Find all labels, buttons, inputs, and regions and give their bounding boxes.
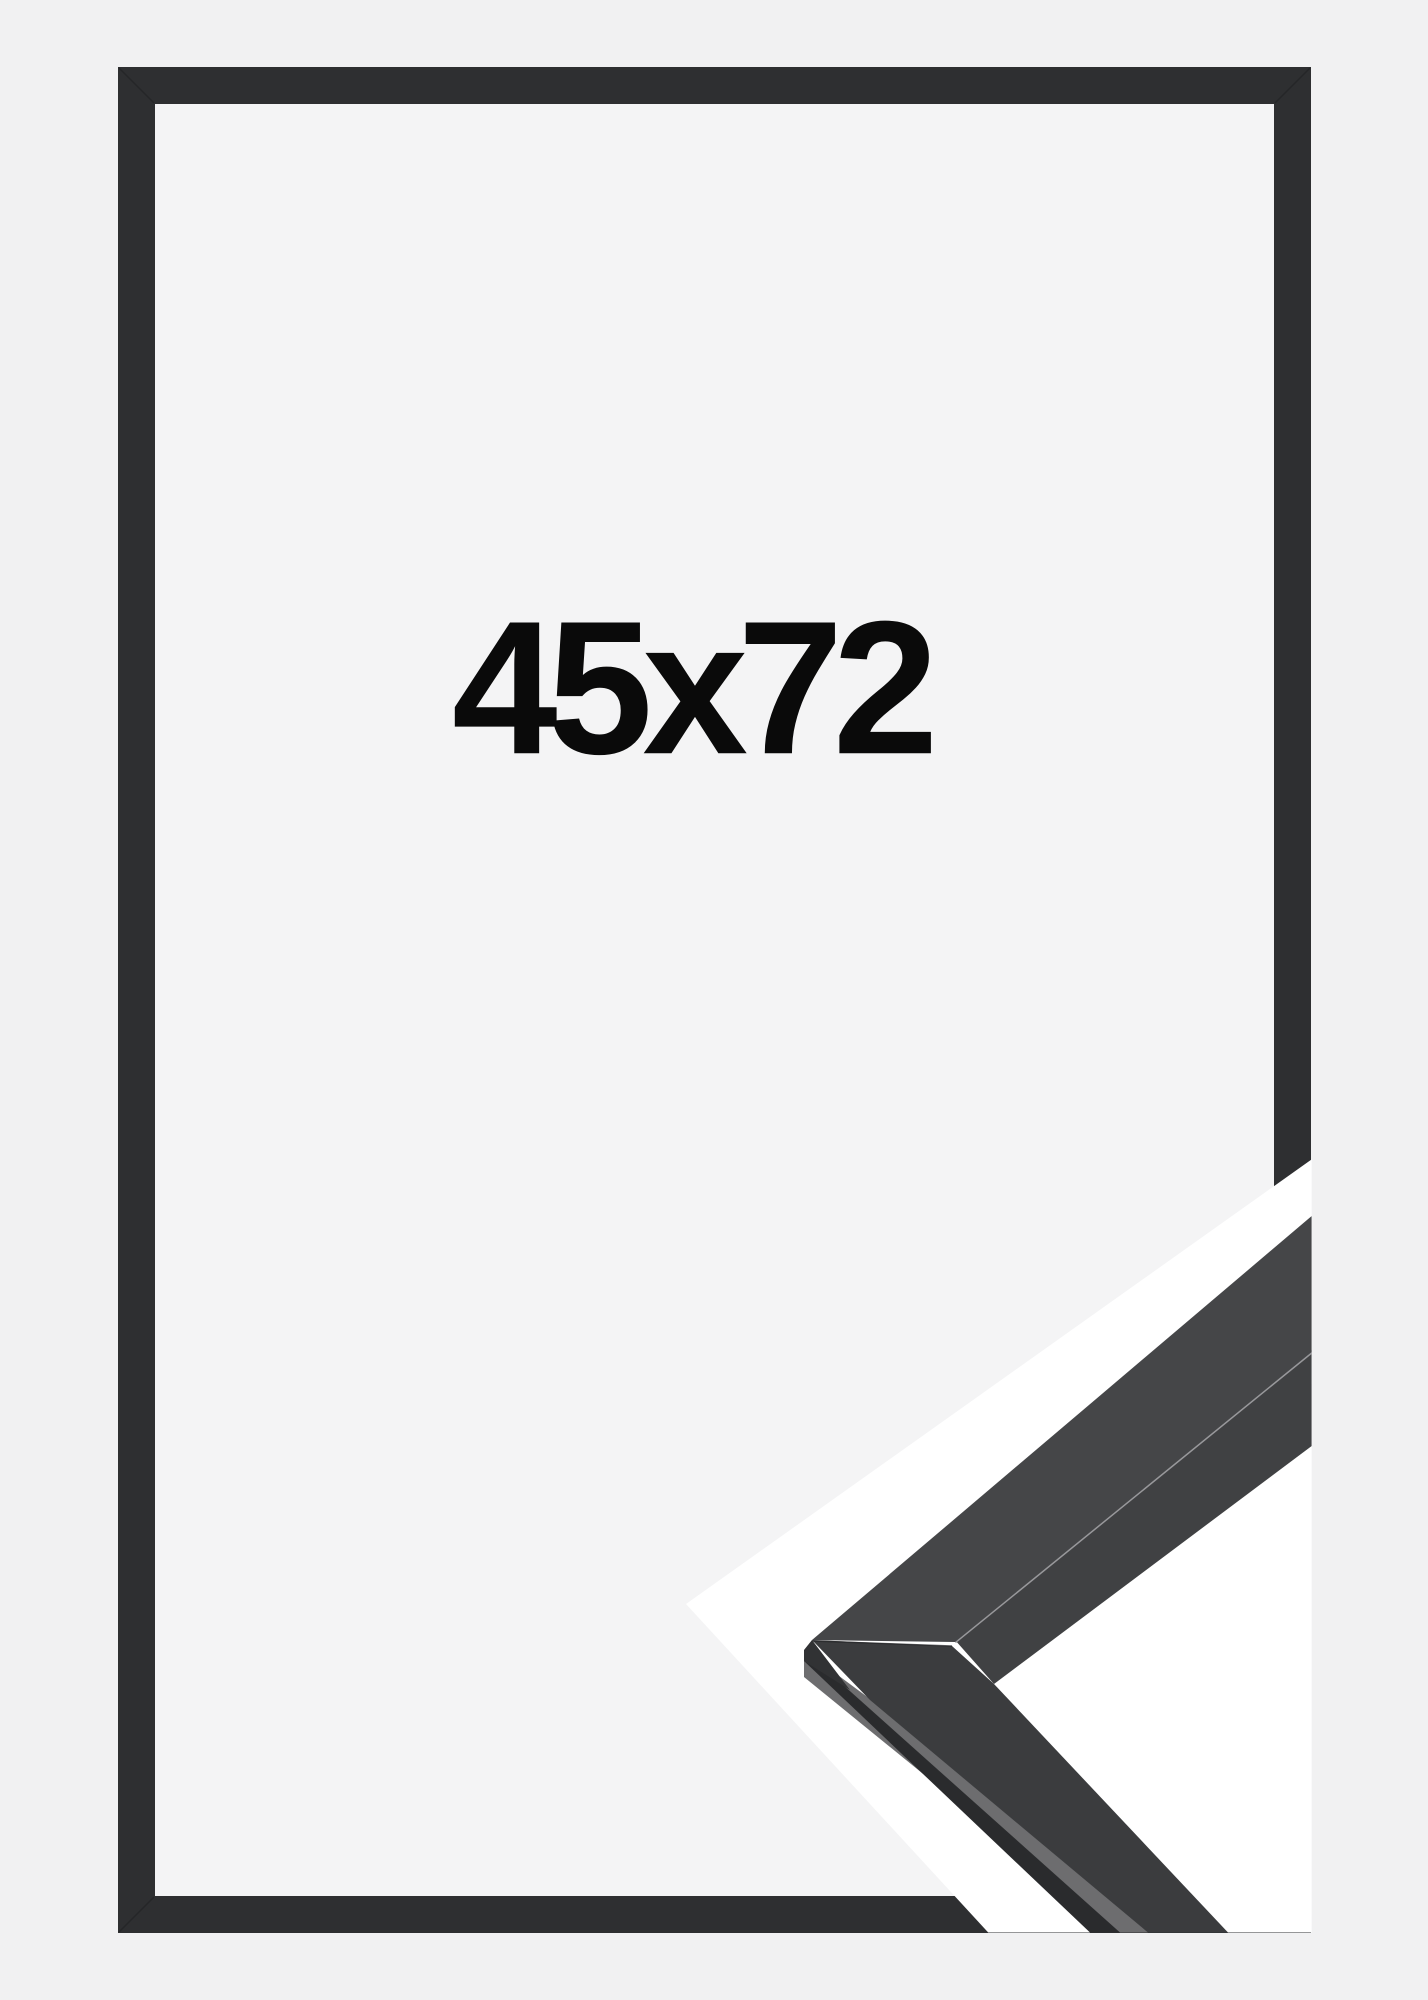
size-label: 45x72: [452, 579, 928, 797]
frame-mockup: [0, 0, 1428, 2000]
product-image: 45x72: [0, 0, 1428, 2000]
